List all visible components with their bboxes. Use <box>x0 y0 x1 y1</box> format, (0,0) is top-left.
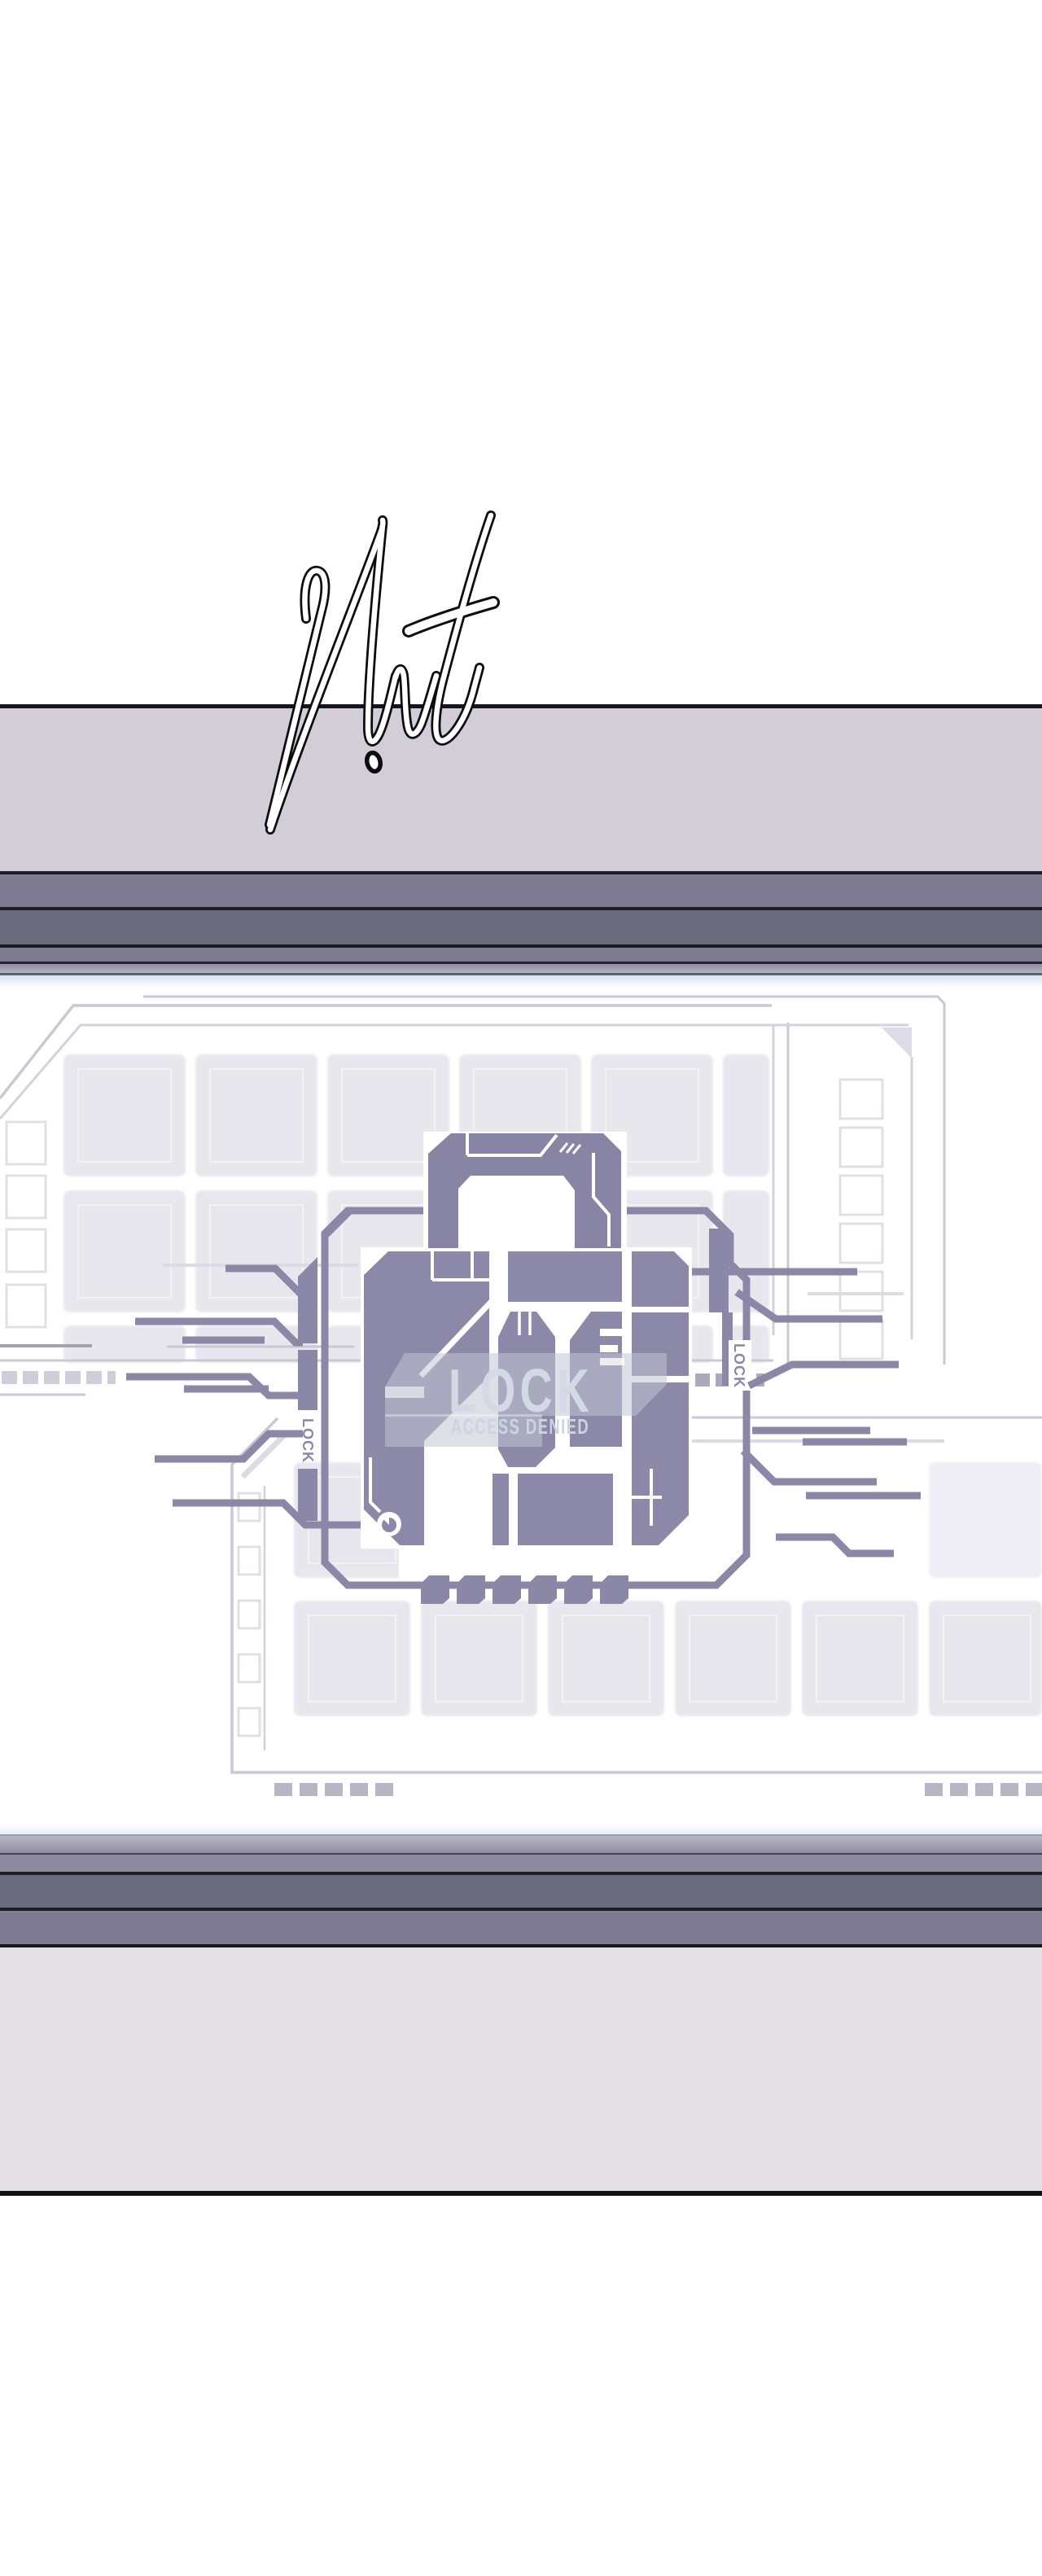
svg-text:LOCK: LOCK <box>731 1343 747 1388</box>
svg-text:ACCESS DENIED: ACCESS DENIED <box>451 1415 589 1439</box>
svg-text:LOCK: LOCK <box>300 1418 316 1463</box>
